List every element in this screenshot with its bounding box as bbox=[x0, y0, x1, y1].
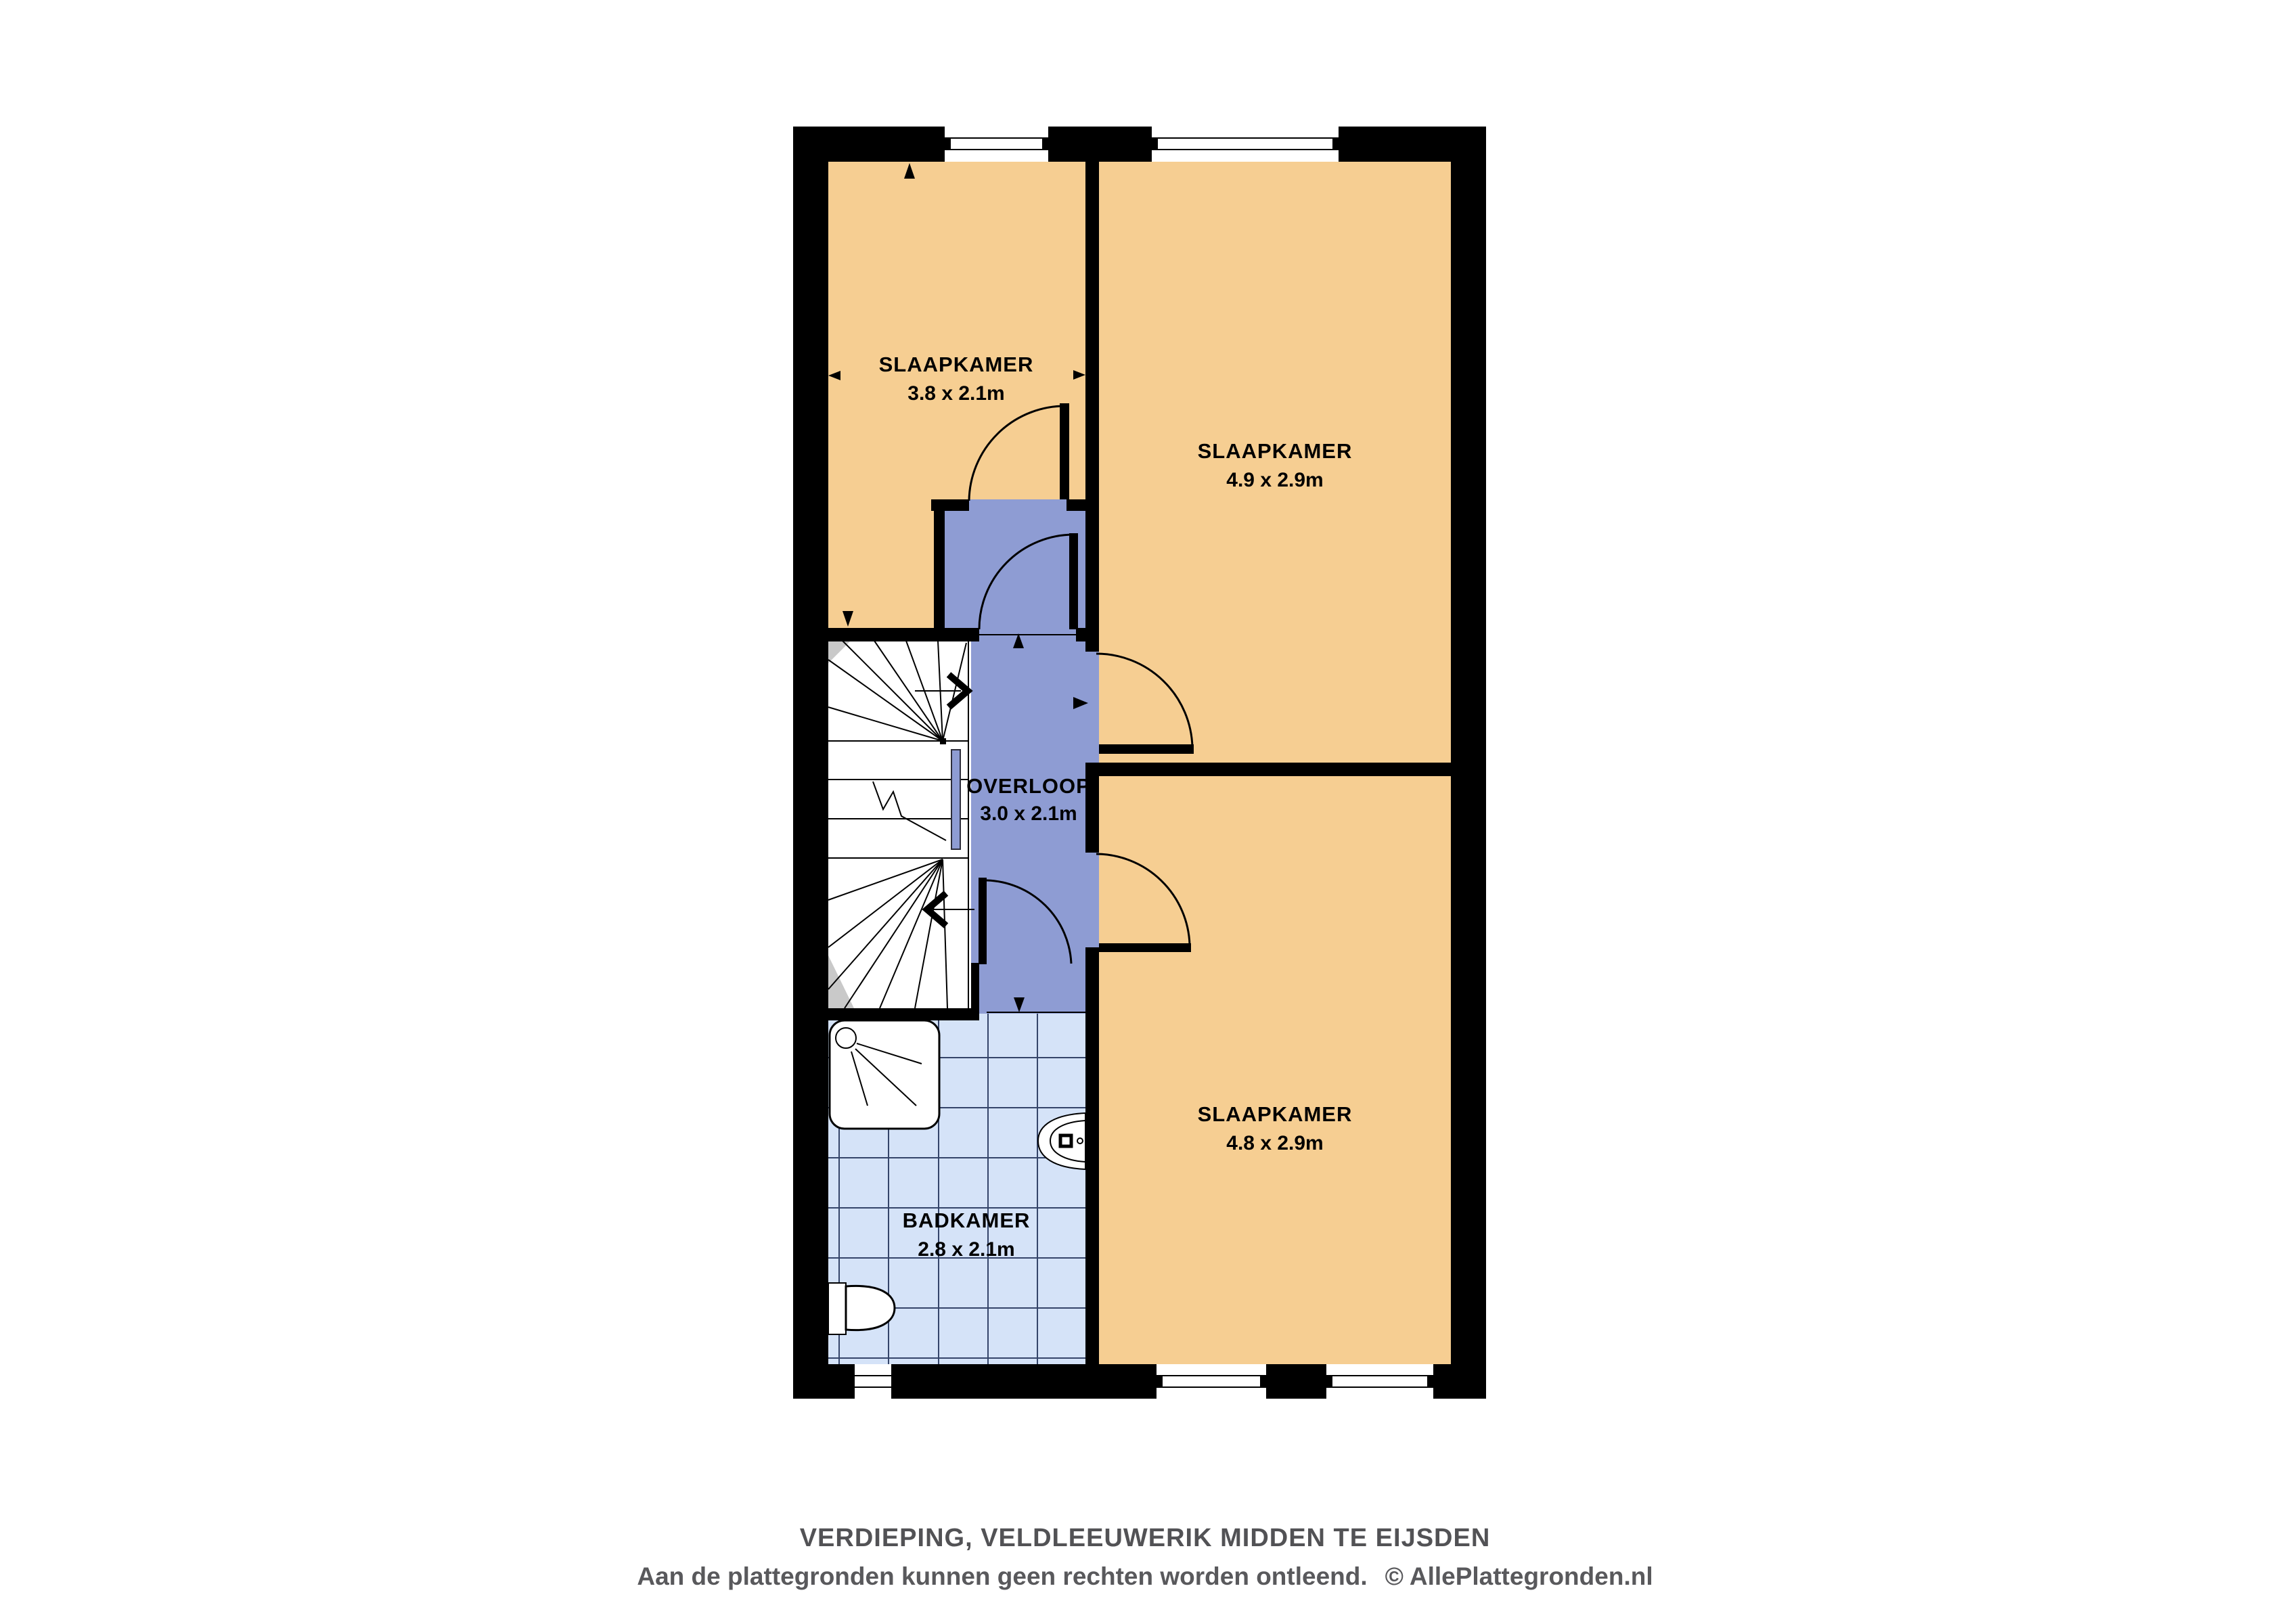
room-bedroom-top-left bbox=[828, 162, 1085, 499]
label-bathroom-dims: 2.8 x 2.1m bbox=[918, 1238, 1014, 1261]
stair-treads bbox=[828, 741, 968, 858]
wall-divider-lower bbox=[1085, 947, 1099, 1364]
disclaimer-text: Aan de plattegronden kunnen geen rechten… bbox=[637, 1562, 1367, 1590]
stair-railing bbox=[951, 750, 960, 849]
stair-lower-fan bbox=[828, 859, 947, 1008]
label-landing-name: OVERLOOP bbox=[966, 774, 1091, 798]
brand-name: AllePlattegronden.nl bbox=[1410, 1562, 1653, 1590]
label-bedroom-top-right-dims: 4.9 x 2.9m bbox=[1226, 469, 1323, 491]
disclaimer-line: Aan de plattegronden kunnen geen rechten… bbox=[0, 1562, 2290, 1591]
window-top-right bbox=[1152, 127, 1339, 162]
window-bottom-left bbox=[1157, 1364, 1266, 1399]
room-vestibule bbox=[945, 511, 1085, 635]
wall-bedroom1-stub bbox=[1067, 499, 1085, 511]
floorplan-drawing: SLAAPKAMER 3.8 x 2.1m SLAAPKAMER 4.9 x 2… bbox=[0, 0, 2290, 1624]
label-bedroom-bottom-right-dims: 4.8 x 2.9m bbox=[1226, 1132, 1323, 1154]
stair-break-line bbox=[873, 782, 946, 840]
shower bbox=[830, 1020, 939, 1129]
label-bedroom-top-right-name: SLAAPKAMER bbox=[1198, 439, 1353, 463]
floorplan-page: SLAAPKAMER 3.8 x 2.1m SLAAPKAMER 4.9 x 2… bbox=[0, 0, 2290, 1624]
opening-bedroom-bottom-right bbox=[1085, 853, 1099, 947]
window-bottom-right bbox=[1326, 1364, 1433, 1399]
stair-arrow-down bbox=[927, 893, 974, 926]
wall-vestibule-left bbox=[934, 499, 945, 641]
footer: VERDIEPING, VELDLEEUWERIK MIDDEN TE EIJS… bbox=[0, 1524, 2290, 1591]
window-top-left bbox=[945, 127, 1048, 162]
wall-bathroom-top bbox=[828, 1008, 979, 1020]
room-bedroom-bottom-right bbox=[1099, 776, 1451, 1364]
wall-stair-top bbox=[828, 628, 979, 641]
opening-bedroom-top-right bbox=[1085, 652, 1099, 763]
label-bedroom-top-left-dims: 3.8 x 2.1m bbox=[907, 382, 1004, 405]
staircase bbox=[828, 641, 974, 1008]
copyright-icon: © bbox=[1385, 1562, 1404, 1590]
wall-right bbox=[1451, 127, 1486, 1399]
wall-left bbox=[793, 127, 828, 1399]
label-bedroom-bottom-right-name: SLAAPKAMER bbox=[1198, 1102, 1353, 1126]
wall-divider-upper bbox=[1085, 162, 1099, 652]
wall-vestibule-stub-right bbox=[1076, 628, 1085, 641]
wall-landing-bottom-stub bbox=[971, 963, 979, 1020]
room-bedroom-top-left-ext bbox=[828, 499, 934, 628]
wall-bedrooms-divider bbox=[1099, 763, 1451, 776]
label-bedroom-top-left-name: SLAAPKAMER bbox=[879, 353, 1034, 376]
plan-title: VERDIEPING, VELDLEEUWERIK MIDDEN TE EIJS… bbox=[0, 1524, 2290, 1553]
label-landing-dims: 3.0 x 2.1m bbox=[980, 803, 1077, 825]
wall-top bbox=[793, 127, 1486, 162]
threshold-bedroom-top-left bbox=[969, 499, 1067, 511]
label-bathroom-name: BADKAMER bbox=[903, 1209, 1031, 1232]
window-bathroom bbox=[855, 1364, 891, 1399]
